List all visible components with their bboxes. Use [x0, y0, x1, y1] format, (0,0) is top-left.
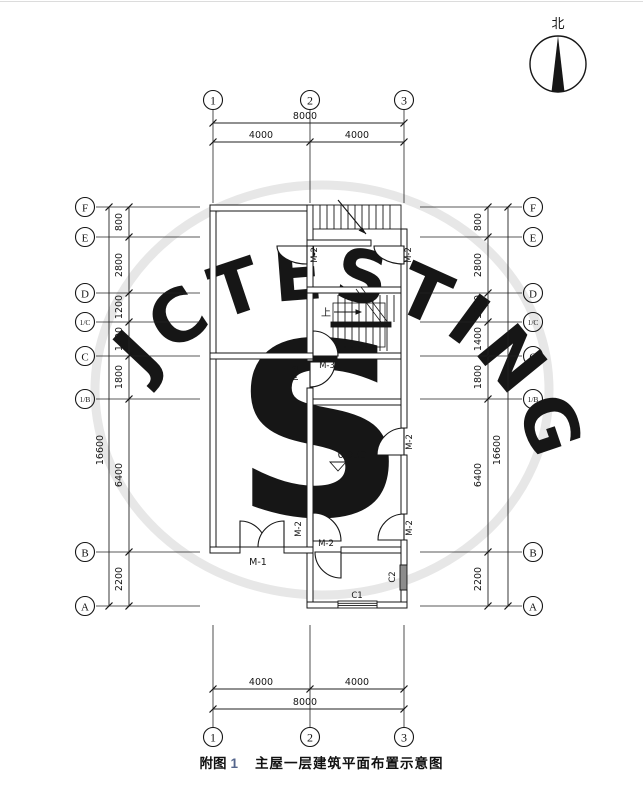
stair-up-label: 上 [321, 307, 331, 319]
axis-row-c-left: C [81, 352, 88, 364]
dim-left-seg-2: 2800 [114, 253, 125, 277]
dim-bottom-seg-1: 4000 [249, 677, 273, 688]
window-c2 [400, 565, 407, 590]
dim-top-seg-1: 4000 [249, 130, 273, 141]
label-m2-upper-right: M-2 [404, 247, 414, 263]
axis-col-3-bottom: 3 [401, 731, 407, 745]
dim-bottom-overall: 8000 [293, 697, 317, 708]
level-value: 0.350 [338, 450, 367, 461]
axis-col-2-top: 2 [307, 94, 313, 108]
dim-left-seg-5: 1800 [114, 365, 125, 389]
label-m2-hall-mid: M-2 [405, 434, 415, 450]
dim-left-overall: 16600 [95, 435, 106, 465]
label-c1: C1 [351, 591, 362, 601]
dim-right-overall: 16600 [492, 435, 503, 465]
axis-row-d-left: D [81, 289, 89, 301]
dim-left-seg-3: 1200 [114, 295, 125, 319]
axis-row-a-left: A [81, 602, 89, 614]
dim-top-overall: 8000 [293, 111, 317, 122]
dim-right-seg-6: 6400 [473, 463, 484, 487]
axis-col-1-top: 1 [210, 94, 216, 108]
axis-row-b-right: B [529, 548, 536, 560]
dim-bottom-seg-2: 4000 [345, 677, 369, 688]
dim-left-seg-7: 2200 [114, 567, 125, 591]
label-m2-hall-south: M-2 [294, 521, 304, 537]
label-m2-upper-left: M-2 [310, 247, 320, 263]
axis-row-1c-right: 1/C [528, 318, 539, 327]
north-label: 北 [551, 17, 564, 32]
label-m3-vertical: M-3 [291, 365, 301, 381]
caption-number: 1 [230, 756, 238, 771]
axis-row-e-left: E [82, 233, 89, 245]
axis-row-f-left: F [82, 203, 88, 215]
axis-col-2-bottom: 2 [307, 731, 313, 745]
axis-row-a-right: A [529, 602, 537, 614]
axis-row-c-right: C [529, 352, 536, 364]
door-m2-porch [315, 552, 341, 578]
axis-row-d-right: D [529, 289, 537, 301]
label-m3-horizontal: M-3 [319, 361, 335, 371]
label-c2: C2 [388, 571, 398, 582]
dim-left-seg-6: 6400 [114, 463, 125, 487]
label-m2-porch: M-2 [318, 539, 334, 549]
dim-left-seg-1: 800 [114, 213, 125, 231]
window-c1 [338, 601, 377, 608]
axis-row-1c-left: 1/C [80, 318, 91, 327]
north-arrow: 北 [530, 17, 586, 92]
axis-col-1-bottom: 1 [210, 731, 216, 745]
caption-prefix: 附图 [199, 756, 226, 771]
drawing-page: S JCTESTING 北 [0, 0, 643, 799]
axis-row-1b-left: 1/B [80, 395, 91, 404]
axis-row-e-right: E [530, 233, 537, 245]
axis-col-3-top: 3 [401, 94, 407, 108]
dim-right-seg-5: 1800 [473, 365, 484, 389]
figure-caption: 附图1主屋一层建筑平面布置示意图 [0, 752, 643, 772]
dim-right-seg-2: 2800 [473, 253, 484, 277]
north-needle [552, 36, 565, 92]
dim-right-seg-4: 1400 [473, 327, 484, 351]
dim-top-seg-2: 4000 [345, 130, 369, 141]
dim-right-seg-7: 2200 [473, 567, 484, 591]
floor-plan-svg: S JCTESTING 北 [0, 0, 643, 799]
external-stair [313, 200, 401, 234]
dim-right-seg-3: 1200 [473, 295, 484, 319]
dim-left-seg-4: 1400 [114, 327, 125, 351]
axis-row-1b-right: 1/B [528, 395, 539, 404]
axis-row-f-right: F [530, 203, 536, 215]
dim-right-seg-1: 800 [473, 213, 484, 231]
label-m1: M-1 [249, 557, 267, 568]
label-m2-hall-lower: M-2 [405, 520, 415, 536]
caption-title: 主屋一层建筑平面布置示意图 [255, 756, 444, 771]
axis-row-b-left: B [81, 548, 88, 560]
